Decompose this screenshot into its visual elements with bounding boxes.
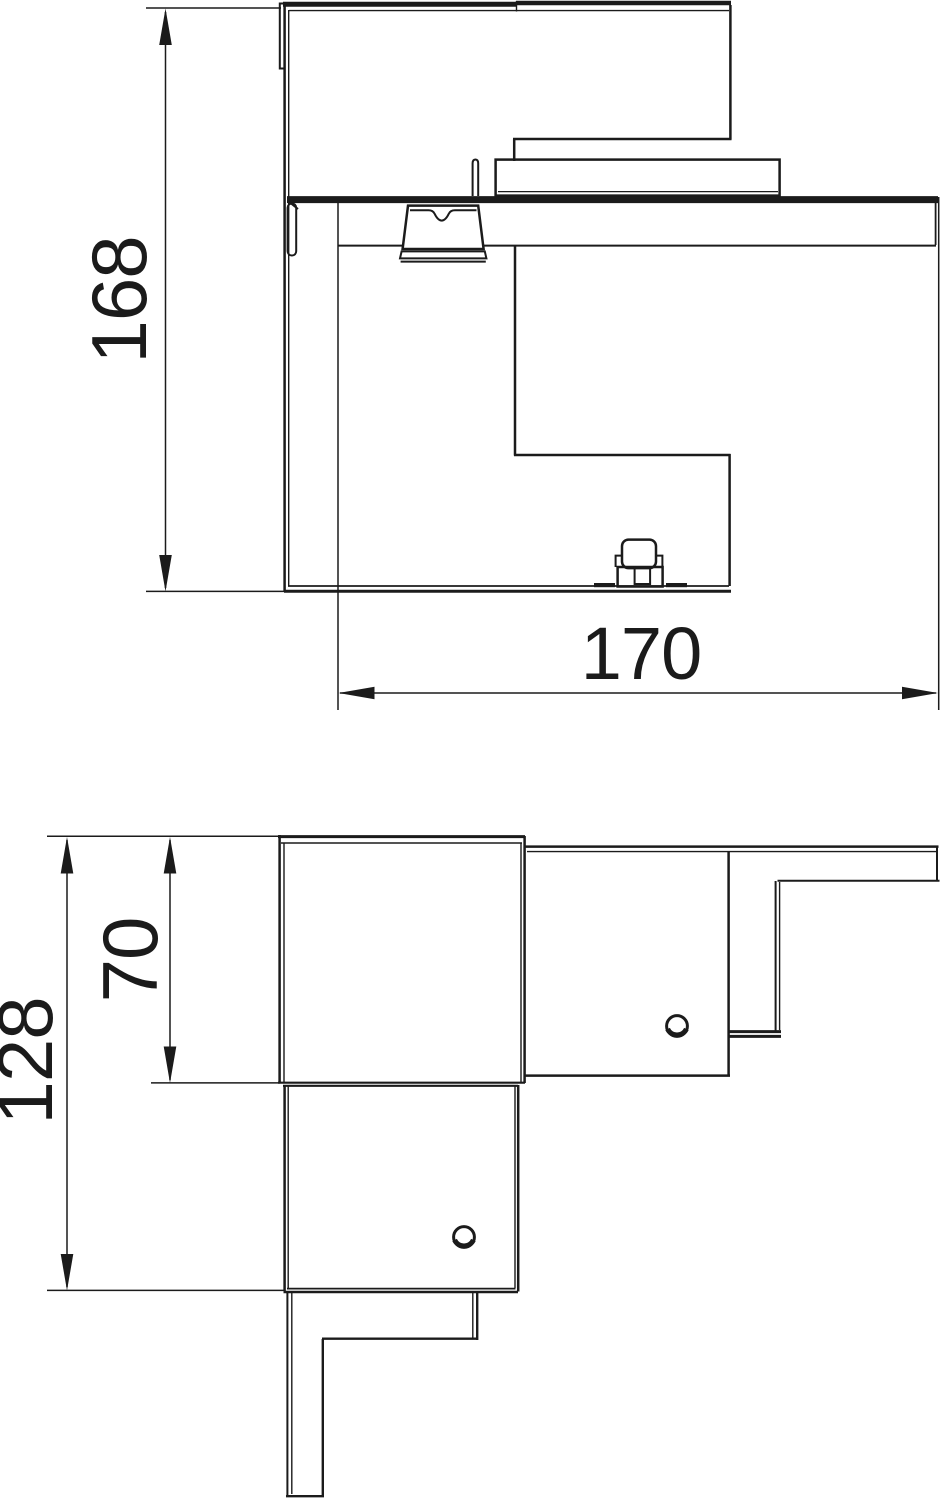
adjoining-profile-right: [729, 846, 940, 1036]
arrowhead-right: [902, 687, 938, 700]
dimension-70: 70: [86, 837, 280, 1083]
cover-strip: [496, 160, 780, 196]
dim-label-170: 170: [581, 612, 701, 695]
dimension-128: 128: [0, 836, 284, 1290]
arrowhead-down: [61, 1254, 74, 1291]
arrowhead-down: [164, 1047, 177, 1084]
screw-hole-shadow: [668, 1029, 687, 1035]
drawing-canvas: 168 170: [0, 0, 940, 1500]
arrowhead-up: [164, 837, 177, 874]
mounting-clip: [400, 206, 486, 262]
foot-pad: [666, 583, 687, 587]
bottom-view: 128 70: [0, 835, 940, 1497]
latch-clip: [616, 540, 663, 587]
dimension-170: 170: [338, 197, 939, 710]
arrowhead-left: [339, 687, 375, 700]
upper-left-cover: [278, 835, 525, 1083]
arrowhead-up: [61, 837, 74, 874]
screw-hole-shadow: [455, 1240, 474, 1246]
foot-pad: [594, 583, 615, 587]
dim-label-168: 168: [75, 236, 163, 363]
technical-drawing: 168 170: [0, 0, 940, 1500]
corner-body-outline: [278, 835, 940, 1497]
arrowhead-down: [159, 555, 172, 592]
dim-label-128: 128: [0, 997, 69, 1124]
dim-label-70: 70: [86, 918, 174, 1003]
corner-body-outline: [280, 1, 938, 591]
arrowhead-up: [159, 9, 172, 46]
lower-cover: [283, 1085, 518, 1292]
adjoining-profile-bottom: [286, 1292, 478, 1497]
dimension-168: 168: [75, 8, 284, 592]
locking-tab: [473, 160, 479, 197]
top-view: 168 170: [75, 1, 939, 710]
